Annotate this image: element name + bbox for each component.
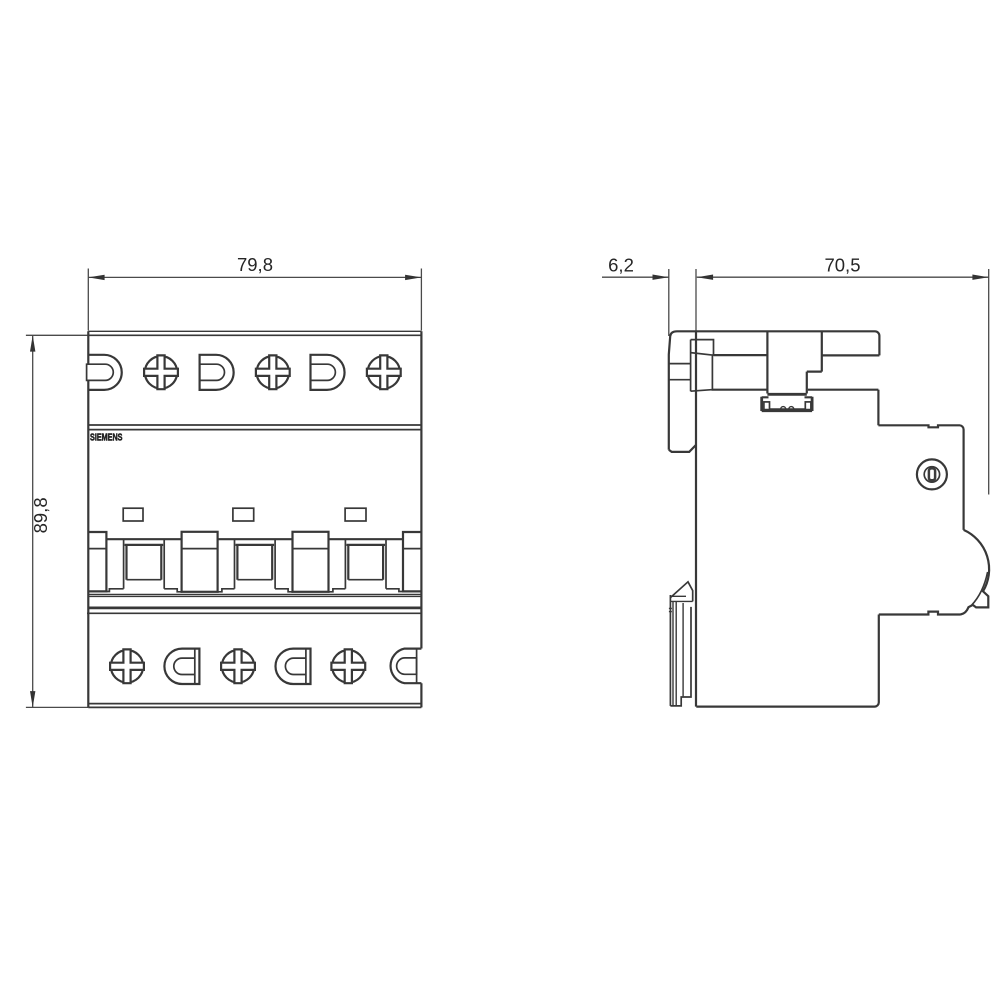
svg-text:70,5: 70,5 xyxy=(824,255,860,276)
svg-text:SIEMENS: SIEMENS xyxy=(90,432,123,443)
svg-text:79,8: 79,8 xyxy=(237,254,273,275)
svg-text:6,2: 6,2 xyxy=(608,255,634,276)
